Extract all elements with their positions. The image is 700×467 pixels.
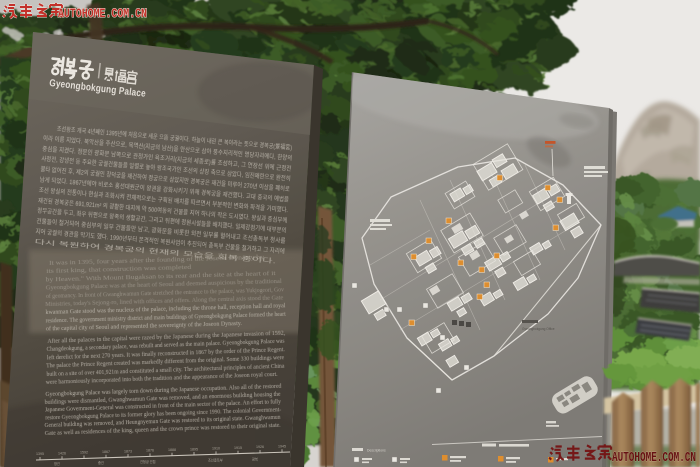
svg-text:AUTOHOME.COM.CN: AUTOHOME.COM.CN [612,451,696,466]
svg-text:AUTOHOME.COM.CN: AUTOHOME.COM.CN [58,7,147,21]
